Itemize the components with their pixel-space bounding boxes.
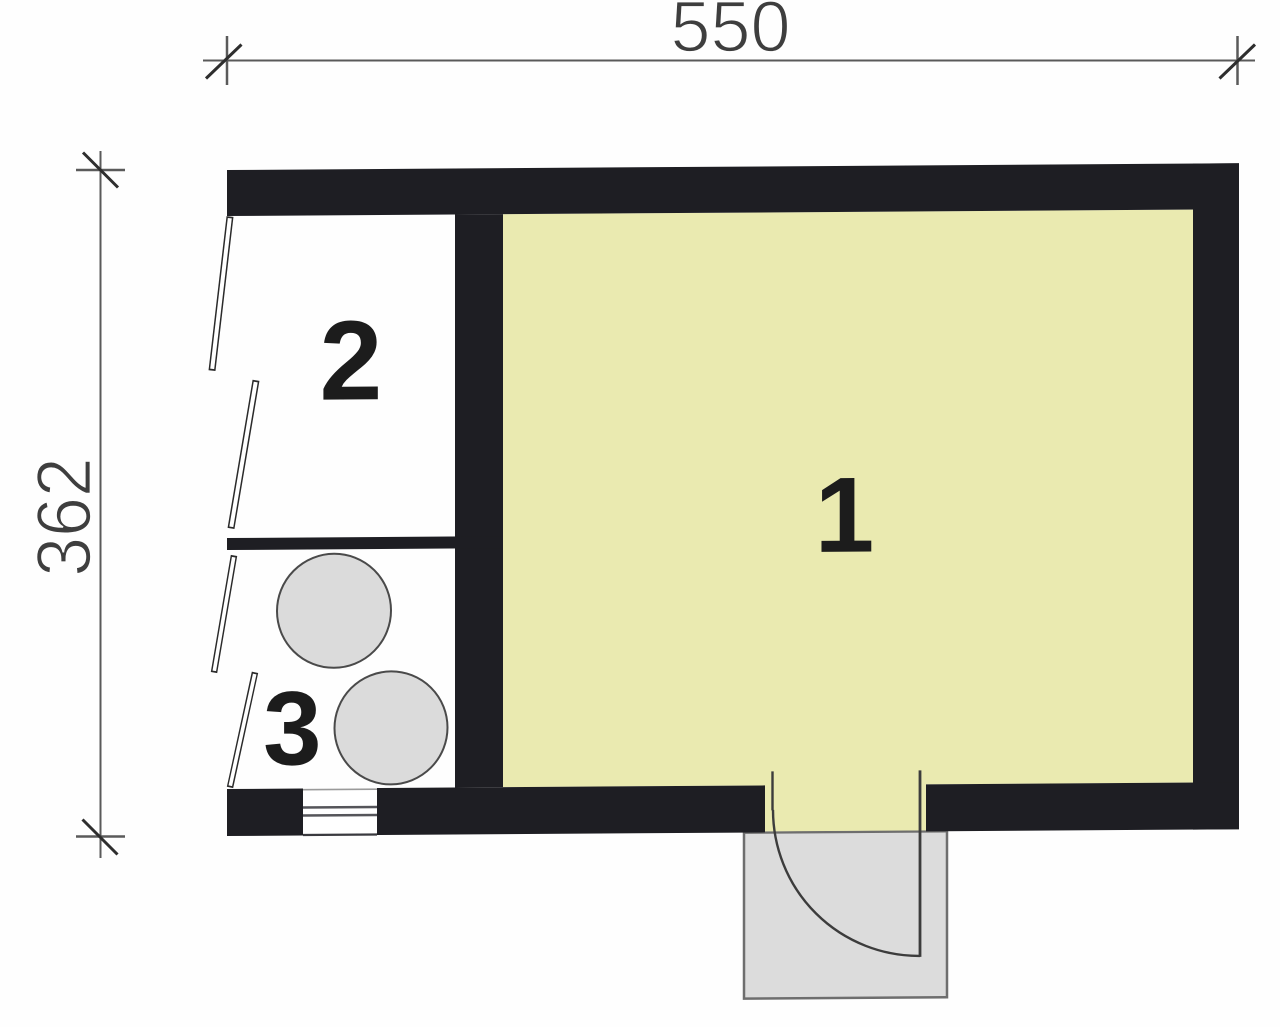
svg-text:2: 2 — [320, 297, 383, 423]
svg-text:362: 362 — [21, 457, 107, 576]
svg-text:3: 3 — [263, 670, 321, 787]
svg-text:550: 550 — [670, 0, 790, 68]
svg-text:1: 1 — [815, 455, 875, 575]
